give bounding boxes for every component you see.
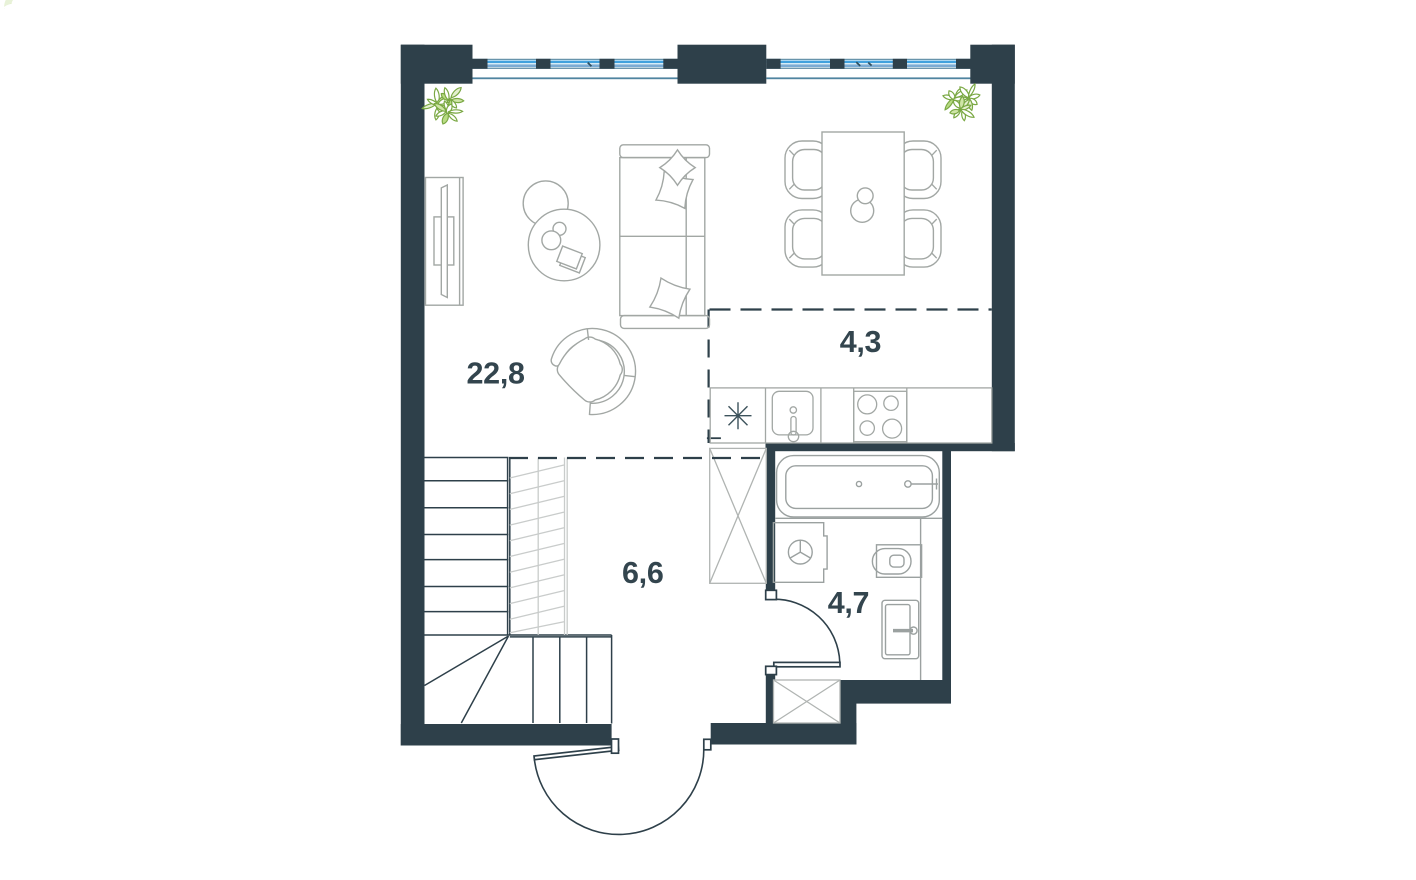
svg-text:4,3: 4,3 <box>840 325 882 359</box>
svg-text:4,7: 4,7 <box>828 586 870 620</box>
svg-text:22,8: 22,8 <box>467 357 525 391</box>
svg-text:6,6: 6,6 <box>622 556 664 590</box>
